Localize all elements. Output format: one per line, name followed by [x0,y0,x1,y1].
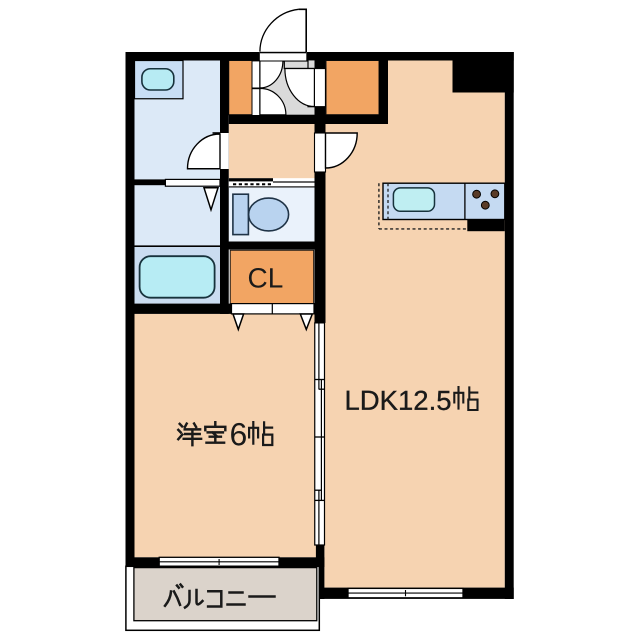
svg-text:6: 6 [229,416,247,452]
svg-text:CL: CL [247,263,283,294]
svg-text:LDK12.5: LDK12.5 [344,385,451,416]
